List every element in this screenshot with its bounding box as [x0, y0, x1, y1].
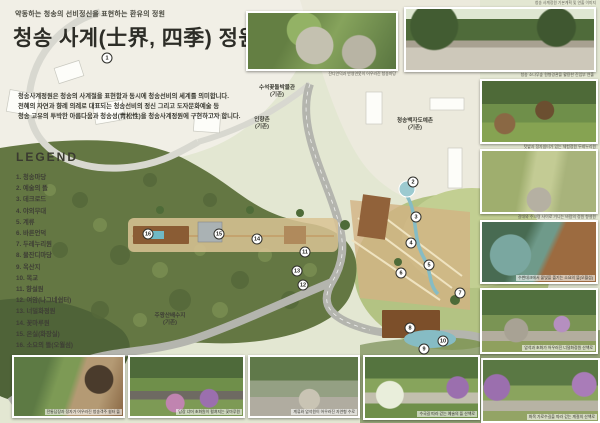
photo-caption: 청송 소나무숲 원형경관을 활용한 진입부 연출 [521, 72, 594, 78]
render-photo-hydrangea-path: 수국길 따라 걷는 예술의 뜰 산책로 [363, 355, 480, 420]
plan-label-note: (기존) [397, 125, 433, 132]
legend-item: 12. 여암(나그네쉼터) [16, 295, 78, 306]
render-image [482, 290, 596, 352]
photo-caption: 수국길 따라 걷는 예술의 뜰 산책로 [417, 411, 477, 417]
render-photo-grass-path: 갈대와 수크령 사이로 거니는 바람의 정원 향설원 [480, 149, 598, 214]
plan-marker-16: 16 [143, 229, 154, 240]
legend-item: 11. 향설원 [16, 284, 78, 295]
render-photo-pond-deck: 수변데크에서 물빛을 즐기는 소요의 뜰(오월섬) [480, 220, 598, 284]
plan-marker-12: 12 [298, 280, 309, 291]
render-photo-entrance: 청송 소나무숲 원형경관을 활용한 진입부 연출 [404, 7, 596, 72]
plan-marker-9: 9 [419, 344, 430, 355]
legend-item: 4. 야외무대 [16, 206, 78, 217]
plan-label-reservoir: 주왕산배수지 (기존) [155, 313, 186, 327]
render-photo-tree-allee: 화목 가로수길을 따라 걷는 계절의 산책로 [481, 358, 600, 423]
legend-heading: LEGEND [16, 150, 78, 164]
legend-item: 6. 바른언덕 [16, 228, 78, 239]
render-photo-cheongsong-madang: 잔디언덕과 반영연못이 어우러진 청송마당 [246, 11, 398, 71]
render-image [482, 151, 596, 212]
plan-label-text: 수석꽃돌박물관 [259, 85, 295, 92]
plan-label-village: 인향촌 (기존) [254, 117, 269, 131]
description-line: 천혜의 자연과 향례 의례로 대표되는 청송선비의 정신 그리고 도자문화예술 … [18, 102, 240, 112]
render-image [248, 13, 396, 69]
legend-item: 7. 두레누리원 [16, 239, 78, 250]
plan-marker-13: 13 [292, 266, 303, 277]
render-image [14, 357, 123, 416]
corner-note: 청송 사계정원 기본계획 및 연출 이미지 [535, 1, 596, 6]
photo-caption: 갈대와 수크령 사이로 거니는 바람의 정원 향설원 [518, 214, 596, 220]
description-line: 청송 고유의 투박한 아름다움과 청송성(靑松性)을 청송사계정원에 구현하고자… [18, 112, 240, 122]
render-image [482, 222, 596, 282]
render-photo-stream-rocks: 계류와 암석원이 어우러진 자연형 수로 [248, 355, 360, 418]
legend-item: 3. 데크로드 [16, 194, 78, 205]
photo-caption: 수변데크에서 물빛을 즐기는 소요의 뜰(오월섬) [516, 275, 595, 281]
photo-caption: 화목 가로수길을 따라 걷는 계절의 산책로 [527, 414, 597, 420]
presentation-board: 약동하는 청송의 선비정신을 표현하는 환유의 정원 청송 사계(士界, 四季)… [0, 0, 600, 423]
plan-marker-7: 7 [455, 288, 466, 299]
legend-item: 14. 꽃마루원 [16, 318, 78, 329]
render-image [482, 81, 596, 142]
photo-caption: 계류와 암석원이 어우러진 자연형 수로 [291, 409, 357, 415]
board-subtitle: 약동하는 청송의 선비정신을 표현하는 환유의 정원 [15, 9, 165, 19]
render-photo-durenuriwon: 텃밭과 정자쉼터가 있는 체험정원 두레누리원 [480, 79, 598, 144]
plan-label-text: 인향촌 [254, 117, 269, 124]
photo-caption: 전통담장과 정자가 어우러진 청송객주 쉼터 뜰 [45, 409, 122, 415]
plan-label-museum: 수석꽃돌박물관 (기존) [259, 85, 295, 99]
legend-item: 5. 계류 [16, 217, 78, 228]
render-photo-rock-garden: 암석과 초화가 어우러진 너덜화정원 산책로 [480, 288, 598, 354]
plan-label-note: (기존) [155, 320, 186, 327]
plan-marker-2: 2 [408, 177, 419, 188]
legend-item: 13. 너덜화정원 [16, 306, 78, 317]
plan-label-pottery: 청송백자도예촌 (기존) [397, 118, 433, 132]
legend-item: 8. 물잔디마당 [16, 250, 78, 261]
render-photo-flower-garden: 담장 너머 초화원이 펼쳐지는 꽃마루원 [128, 355, 245, 418]
plan-label-note: (기존) [259, 92, 295, 99]
plan-marker-1: 1 [102, 53, 113, 64]
plan-label-text: 주왕산배수지 [155, 313, 186, 320]
plan-marker-3: 3 [411, 212, 422, 223]
plan-label-note: (기존) [254, 124, 269, 131]
photo-caption: 담장 너머 초화원이 펼쳐지는 꽃마루원 [176, 409, 242, 415]
plan-marker-6: 6 [396, 268, 407, 279]
render-image [483, 360, 598, 421]
plan-marker-11: 11 [300, 247, 311, 258]
plan-label-text: 청송백자도예촌 [397, 118, 433, 125]
render-image [250, 357, 358, 416]
description-line: 청송사계정원은 청송의 사계절을 표현함과 동시에 청송선비의 세계를 의미합니… [18, 92, 240, 102]
photo-caption: 암석과 초화가 어우러진 너덜화정원 산책로 [522, 345, 595, 351]
board-title: 청송 사계(士界, 四季) 정원 [13, 22, 258, 52]
render-photo-pavilion-street: 전통담장과 정자가 어우러진 청송객주 쉼터 뜰 [12, 355, 125, 418]
render-image [130, 357, 243, 416]
render-image [365, 357, 478, 418]
plan-marker-15: 15 [214, 229, 225, 240]
plan-marker-14: 14 [252, 234, 263, 245]
legend-item: 10. 목교 [16, 273, 78, 284]
plan-marker-4: 4 [406, 238, 417, 249]
photo-caption: 잔디언덕과 반영연못이 어우러진 청송마당 [328, 71, 396, 77]
legend-item: 16. 소요의 뜰(오월섬) [16, 340, 78, 351]
render-image [406, 9, 594, 70]
board-description: 청송사계정원은 청송의 사계절을 표현함과 동시에 청송선비의 세계를 의미합니… [18, 92, 240, 121]
legend-item: 1. 청송마당 [16, 172, 78, 183]
legend-item: 2. 예술의 뜰 [16, 183, 78, 194]
legend-item: 15. 온실(화장실) [16, 329, 78, 340]
plan-marker-10: 10 [438, 336, 449, 347]
plan-marker-8: 8 [405, 323, 416, 334]
legend-item: 9. 옥산지 [16, 262, 78, 273]
plan-marker-5: 5 [424, 260, 435, 271]
legend-panel: LEGEND 1. 청송마당 2. 예술의 뜰 3. 데크로드 4. 야외무대 … [16, 150, 78, 351]
